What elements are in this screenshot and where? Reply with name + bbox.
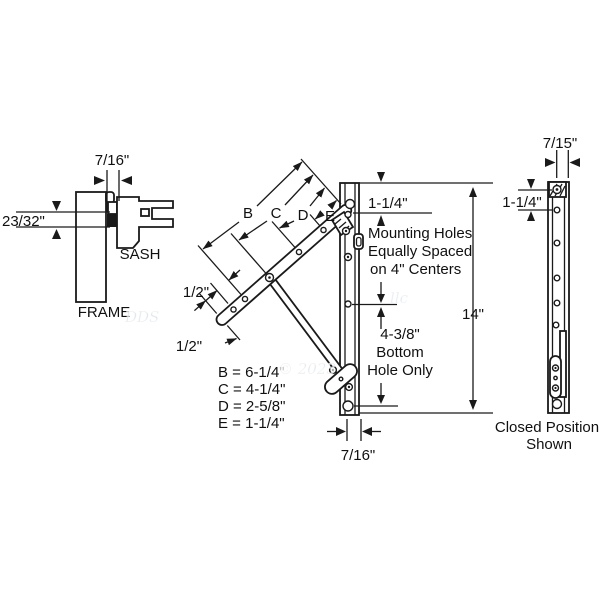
dim-e-label: E (325, 208, 335, 225)
legend-line-d: D = 2-5/8" (218, 398, 285, 415)
legend-line-e: E = 1-1/4" (218, 415, 285, 432)
arrow-down-icon (377, 294, 385, 303)
frame-label: FRAME (78, 304, 131, 321)
arrow-up-icon (52, 229, 61, 239)
mounting-note-1: Mounting Holes (368, 225, 472, 242)
mounting-note-3: on 4" Centers (370, 261, 461, 278)
arrow-left-icon (362, 427, 372, 436)
technical-drawing: 7/16" 23/32" SASH FRAME B C D E 1/2" 1/2… (0, 0, 600, 600)
arrow-down-icon (52, 201, 61, 211)
arm-dimensions (194, 159, 341, 343)
watermark-text-main: DDS (124, 308, 159, 326)
closed-track-hole (554, 275, 560, 281)
rivet-center (554, 387, 556, 389)
dim-line-e (332, 201, 337, 206)
top-pivot (346, 200, 355, 209)
rivet-center (556, 188, 559, 191)
shoe-hole (554, 376, 557, 379)
closed-track-bottom-hole (553, 400, 562, 409)
track-top-offset-label: 1-1/4" (368, 195, 408, 212)
half-dim-arrow (194, 301, 205, 311)
thickness-dim-label: 23/32" (2, 213, 45, 230)
legend-line-c: C = 4-1/4" (218, 381, 285, 398)
closed-position-caption-1: Closed Position (495, 419, 599, 436)
dim-b-label: B (243, 205, 253, 222)
half-dim-upper-label: 1/2" (183, 284, 209, 301)
arrow-down-icon (377, 395, 385, 404)
dim-d-label: D (298, 207, 309, 224)
rivet-center (345, 230, 347, 232)
track-mounting-hole (345, 301, 351, 307)
arrow-right-icon (545, 158, 556, 167)
half-dim-arrow (229, 270, 240, 280)
rivet-center (347, 256, 349, 258)
closed-position-track (518, 150, 580, 413)
arrow-down-icon (469, 400, 477, 410)
frame-profile (76, 192, 106, 302)
bottom-note-1: Bottom (376, 344, 424, 361)
dim-line-e (315, 215, 320, 219)
dim-c-label: C (271, 205, 282, 222)
legend-line-b: B = 6-1/4" (218, 364, 285, 381)
hinge-gap-detail (107, 214, 117, 227)
rivet-center (554, 367, 556, 369)
arrow-left-icon (121, 176, 132, 185)
sash-screw-pocket (141, 209, 149, 216)
rivet-center (268, 276, 271, 279)
dim-line-c (285, 175, 313, 205)
arrow-left-icon (570, 158, 581, 167)
bottom-spacing-label: 4-3/8" (380, 326, 420, 343)
frame-sash-cross-section (16, 170, 173, 302)
closed-track-hole (554, 300, 560, 306)
watermark-text-suffix: llc (390, 289, 409, 307)
closed-track-hole (554, 240, 560, 246)
closed-track-hole (553, 322, 559, 328)
arm-hole-d (296, 249, 301, 254)
half-dim-lower-label: 1/2" (176, 338, 202, 355)
arrow-up-icon (469, 187, 477, 197)
shoe-hole (339, 377, 343, 381)
closed-track-width-label: 7/15" (543, 135, 578, 152)
arrow-right-icon (336, 427, 346, 436)
rivet-center (348, 386, 350, 388)
closed-track-hole (554, 207, 560, 213)
arrow-down-icon (527, 179, 535, 189)
track-width-label: 7/16" (341, 447, 376, 464)
dim-line-b (257, 162, 302, 206)
dim-line-d (310, 188, 325, 206)
arrow-up-icon (377, 307, 385, 317)
arrow-up-icon (527, 211, 535, 221)
extension-tick (231, 234, 266, 274)
sash-profile (117, 197, 173, 248)
arrow-down-icon (377, 172, 385, 182)
watermark-year: © 2023 (278, 360, 336, 378)
extension-tick (227, 326, 240, 341)
closed-position-caption-2: Shown (526, 436, 572, 453)
dim-line-c (239, 221, 267, 240)
closed-track-offset-label: 1-1/4" (502, 194, 542, 211)
bottom-note-2: Hole Only (367, 362, 433, 379)
sash-label: SASH (120, 246, 161, 263)
arm-hole-b (231, 307, 236, 312)
hinge-diagram-canvas: 7/16" 23/32" SASH FRAME B C D E 1/2" 1/2… (0, 0, 600, 600)
arm-hole (242, 296, 247, 301)
track-length-label: 14" (462, 306, 484, 323)
dim-line-d (280, 221, 295, 228)
arm-hole-e (321, 227, 326, 232)
pivot-rivet (345, 212, 351, 218)
half-dim-arrow (225, 339, 237, 344)
arrow-right-icon (94, 176, 105, 185)
mounting-note-2: Equally Spaced (368, 243, 472, 260)
track-bottom-hole (343, 401, 353, 411)
gap-dim-label: 7/16" (95, 152, 130, 169)
